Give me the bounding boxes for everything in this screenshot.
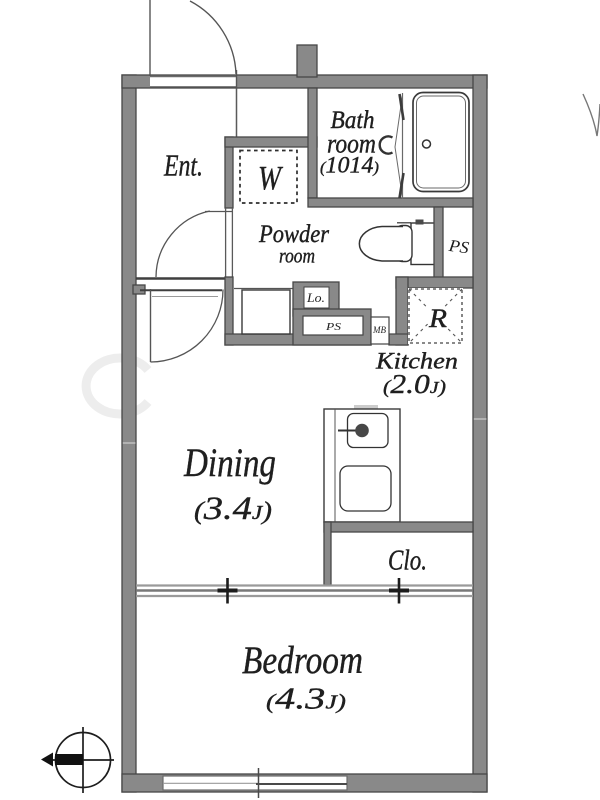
svg-text:(1014): (1014)	[320, 153, 379, 178]
svg-text:Lo.: Lo.	[306, 290, 325, 305]
svg-text:Clo.: Clo.	[388, 546, 427, 577]
svg-text:Ent.: Ent.	[163, 148, 203, 183]
svg-text:MB: MB	[372, 325, 386, 335]
svg-text:PS: PS	[447, 236, 471, 258]
svg-text:PS: PS	[325, 321, 342, 333]
svg-text:W: W	[258, 160, 283, 197]
svg-text:Powder: Powder	[258, 221, 329, 248]
svg-text:Dining: Dining	[183, 440, 276, 485]
svg-text:room: room	[279, 246, 315, 268]
svg-text:R: R	[428, 304, 447, 333]
svg-text:Bedroom: Bedroom	[242, 639, 363, 682]
